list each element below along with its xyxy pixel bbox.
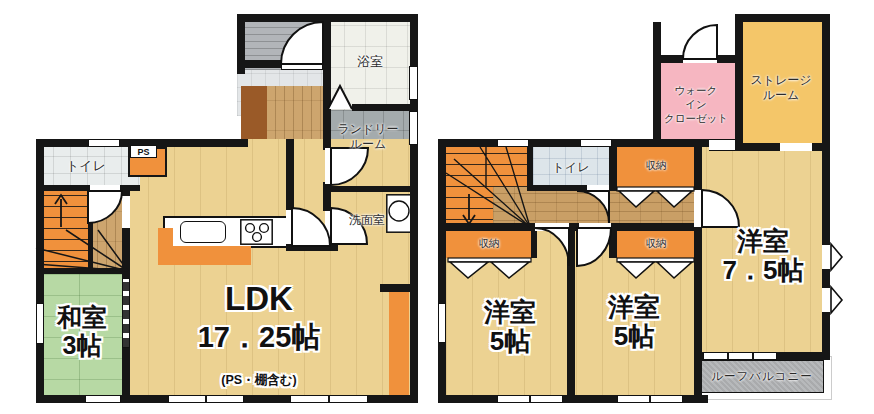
wall bbox=[653, 22, 661, 147]
closet-label-mid: 収納 bbox=[646, 237, 667, 250]
window-tick bbox=[752, 352, 754, 360]
wall bbox=[438, 139, 709, 147]
storage-room-label: ストレージ ルーム bbox=[750, 73, 811, 103]
floor-plan-canvas: PS 浴室 ランドリー ルーム トイレ 洗面室 LDK 17．25帖 (PS・棚… bbox=[0, 0, 874, 414]
window bbox=[438, 303, 446, 343]
w5l-title: 洋室 bbox=[484, 297, 536, 327]
wic-entry-opening bbox=[709, 139, 735, 151]
door-arc bbox=[702, 190, 739, 227]
stair-winder-lines bbox=[446, 147, 530, 230]
door-arc bbox=[683, 25, 717, 59]
wall bbox=[694, 139, 702, 403]
wic-line3: クローゼット bbox=[664, 112, 728, 124]
window-opening bbox=[822, 288, 830, 312]
w75-title: 洋室 bbox=[737, 226, 789, 256]
window-opening bbox=[822, 245, 830, 269]
stairs-down-arrow bbox=[460, 192, 478, 226]
closet-label-left: 収納 bbox=[479, 237, 500, 250]
balcony-window bbox=[703, 352, 777, 360]
w5l-size: 5帖 bbox=[490, 326, 530, 356]
toilet-label-2f: トイレ bbox=[553, 160, 590, 175]
window-tick bbox=[727, 352, 729, 360]
w5m-size: 5帖 bbox=[614, 321, 654, 351]
wall bbox=[735, 14, 828, 22]
window-tick bbox=[529, 395, 531, 403]
storage-line1: ストレージ bbox=[750, 73, 811, 87]
wall bbox=[438, 139, 446, 403]
bifold-closet-door bbox=[617, 187, 694, 209]
bifold-closet-door bbox=[617, 258, 694, 280]
wall bbox=[812, 143, 824, 151]
door-arc bbox=[577, 228, 611, 266]
window-tick bbox=[649, 395, 651, 403]
western-room-5-mid-label: 洋室 5帖 bbox=[608, 293, 660, 351]
window bbox=[580, 139, 612, 147]
bifold-closet-door bbox=[448, 258, 531, 280]
wall bbox=[743, 143, 780, 151]
doorway bbox=[694, 190, 702, 227]
door-arc bbox=[535, 228, 569, 266]
western-room-7-label: 洋室 7．5帖 bbox=[723, 227, 804, 285]
door-arc bbox=[577, 191, 609, 223]
doorway bbox=[780, 143, 812, 151]
casement-window-icon bbox=[830, 286, 843, 314]
w75-size: 7．5帖 bbox=[723, 255, 804, 285]
window bbox=[497, 139, 529, 147]
storage-line2: ルーム bbox=[763, 88, 800, 102]
western-room-5-left-label: 洋室 5帖 bbox=[484, 298, 536, 356]
wic-line2: イン bbox=[685, 98, 707, 110]
casement-window-icon bbox=[830, 243, 843, 271]
roof-balcony-label: ルーフバルコニー bbox=[711, 369, 813, 383]
w5m-title: 洋室 bbox=[608, 292, 660, 322]
wall bbox=[735, 14, 743, 151]
second-floor-plan: ウォーク イン クローゼット ストレージ ルーム トイレ 収納 収納 収納 洋室… bbox=[0, 0, 874, 414]
walk-in-closet-label: ウォーク イン クローゼット bbox=[664, 83, 728, 126]
wic-line1: ウォーク bbox=[675, 84, 718, 96]
closet-label-top: 収納 bbox=[646, 159, 667, 172]
